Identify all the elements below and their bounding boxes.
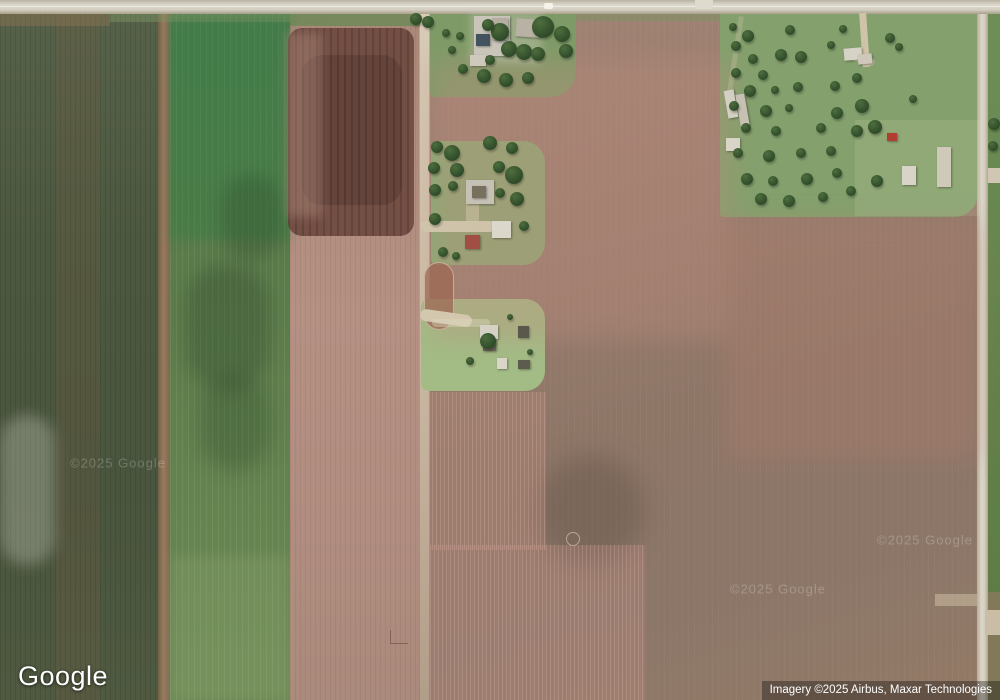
tree <box>466 357 474 365</box>
tree <box>428 162 440 174</box>
tree <box>499 73 513 87</box>
tree <box>531 47 545 61</box>
tree <box>480 333 496 349</box>
tree <box>482 19 494 31</box>
tree <box>758 70 768 80</box>
tree <box>429 213 441 225</box>
tree <box>755 193 767 205</box>
building <box>902 166 916 185</box>
google-watermark: ©2025 Google <box>730 582 826 597</box>
field-boundary-strip <box>158 0 170 700</box>
tree <box>444 145 460 161</box>
tree <box>748 54 758 64</box>
tree <box>785 104 793 112</box>
tree <box>988 141 998 151</box>
tree <box>483 136 497 150</box>
google-logo[interactable]: Google <box>18 661 108 692</box>
field-b-pale-bottom <box>170 555 290 700</box>
tree <box>506 142 518 154</box>
tree <box>909 95 917 103</box>
tree <box>868 120 882 134</box>
tree <box>801 173 813 185</box>
tree <box>783 195 795 207</box>
tree <box>818 192 828 202</box>
tree <box>839 25 847 33</box>
google-watermark: ©2025 Google <box>70 456 166 471</box>
tree <box>519 221 529 231</box>
tree <box>742 30 754 42</box>
field-left-brown-rows <box>56 0 100 700</box>
dark-patch-left-blend <box>286 32 322 217</box>
field-d-red-right <box>725 220 980 460</box>
east-road-driveway-upper <box>988 168 1000 183</box>
tree <box>522 72 534 84</box>
tree <box>768 176 778 186</box>
tree <box>456 32 464 40</box>
east-road-branch-left <box>935 594 977 606</box>
tree <box>771 126 781 136</box>
tree <box>846 186 856 196</box>
tree <box>450 163 464 177</box>
tree <box>760 105 772 117</box>
tree <box>452 252 460 260</box>
field-d-circle-mark <box>566 532 580 546</box>
tree <box>851 125 863 137</box>
top-road-margin-brown <box>0 14 110 26</box>
building <box>492 221 511 238</box>
tree <box>527 349 533 355</box>
tree <box>485 55 495 65</box>
tree <box>895 43 903 51</box>
tree <box>505 166 523 184</box>
tree <box>554 26 570 42</box>
building <box>470 55 486 66</box>
tree <box>741 173 753 185</box>
tree <box>871 175 883 187</box>
building <box>465 235 480 249</box>
tree <box>831 107 843 119</box>
field-d-top-green-strip <box>576 14 720 21</box>
tree <box>775 49 787 61</box>
tree <box>559 44 573 58</box>
field-b-dark-blotch <box>200 375 270 470</box>
road-center-line <box>0 6 1000 7</box>
building <box>518 360 530 369</box>
tree <box>785 25 795 35</box>
tree <box>796 148 806 158</box>
imagery-attribution: Imagery ©2025 Airbus, Maxar Technologies <box>762 681 1000 700</box>
tree <box>429 184 441 196</box>
tree <box>516 44 532 60</box>
field-b-dark-blotch <box>185 265 270 390</box>
cloud-smudge <box>0 415 55 565</box>
tree <box>431 141 443 153</box>
building <box>887 133 897 141</box>
tree <box>458 64 468 74</box>
tree <box>885 33 895 43</box>
tree <box>729 101 739 111</box>
tree <box>448 46 456 54</box>
tree <box>507 314 513 320</box>
road-junction-stub <box>695 0 713 9</box>
tree <box>438 247 448 257</box>
tree <box>988 118 1000 130</box>
tree <box>826 146 836 156</box>
tree <box>855 99 869 113</box>
map-canvas[interactable]: Google Imagery ©2025 Airbus, Maxar Techn… <box>0 0 1000 700</box>
tree <box>495 188 505 198</box>
google-watermark: ©2025 Google <box>877 533 973 548</box>
field-c-top-green-strip <box>290 14 420 26</box>
tree <box>729 23 737 31</box>
tree <box>793 82 803 92</box>
tree <box>763 150 775 162</box>
tree <box>501 41 517 57</box>
tree <box>830 81 840 91</box>
tree <box>731 41 741 51</box>
building <box>472 186 486 198</box>
tree <box>852 73 862 83</box>
tree <box>744 85 756 97</box>
tree <box>816 123 826 133</box>
building <box>497 358 507 369</box>
tree <box>827 41 835 49</box>
tree <box>510 192 524 206</box>
building <box>858 53 873 64</box>
field-d-pink-rows-mid <box>428 392 546 550</box>
tree <box>442 29 450 37</box>
l-shaped-mark <box>390 630 408 644</box>
tree <box>448 181 458 191</box>
building <box>937 147 951 187</box>
tree <box>741 123 751 133</box>
field-d-pink-rows-bottom <box>430 545 645 700</box>
tree <box>731 68 741 78</box>
tree <box>733 148 743 158</box>
tree <box>795 51 807 63</box>
tree <box>477 69 491 83</box>
tree <box>410 13 422 25</box>
building <box>476 34 490 46</box>
tree <box>532 16 554 38</box>
vehicle-on-road <box>544 3 553 9</box>
field-b-dark-blotch <box>222 175 282 260</box>
building <box>518 326 529 338</box>
east-road-driveway-lower <box>985 610 1000 635</box>
tree <box>422 16 434 28</box>
pasture-light-right <box>855 120 980 216</box>
tree <box>493 161 505 173</box>
tree <box>832 168 842 178</box>
tree <box>771 86 779 94</box>
